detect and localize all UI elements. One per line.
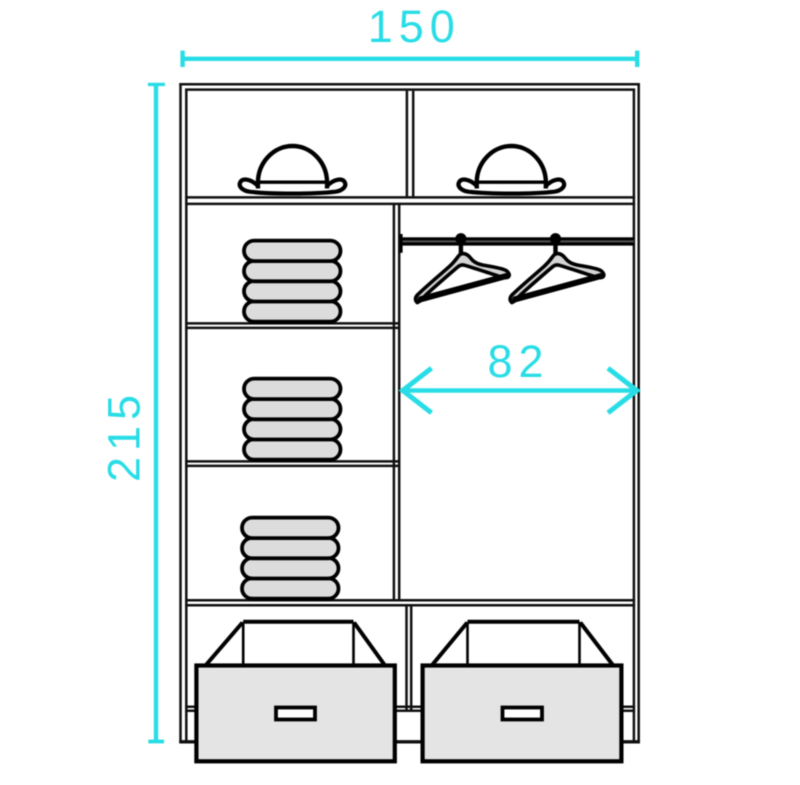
svg-text:150: 150 (368, 1, 461, 52)
svg-text:82: 82 (487, 336, 549, 387)
svg-text:215: 215 (98, 389, 149, 482)
